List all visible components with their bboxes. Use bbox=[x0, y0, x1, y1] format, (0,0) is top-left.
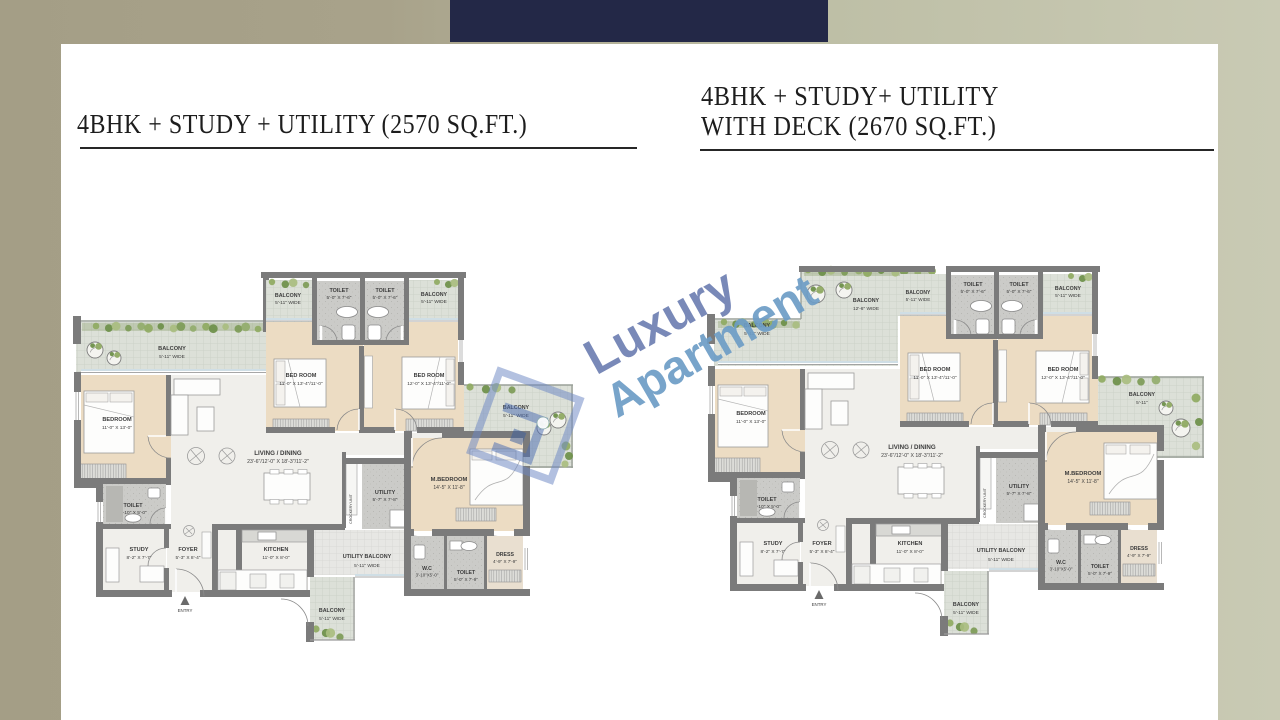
svg-text:11'-0" X 8'-0": 11'-0" X 8'-0" bbox=[262, 555, 290, 561]
svg-text:BALCONY: BALCONY bbox=[1129, 392, 1156, 398]
svg-text:W.C: W.C bbox=[1056, 560, 1066, 566]
svg-text:5'-11" WIDE: 5'-11" WIDE bbox=[1055, 293, 1081, 299]
svg-text:4'-9" X 7'-9": 4'-9" X 7'-9" bbox=[1127, 553, 1151, 558]
svg-text:ENTRY: ENTRY bbox=[812, 602, 827, 607]
svg-text:23'-6"/12'-0" X 18'-3"/11'-2": 23'-6"/12'-0" X 18'-3"/11'-2" bbox=[247, 459, 309, 465]
svg-text:DRESS: DRESS bbox=[496, 552, 514, 558]
svg-text:BED ROOM: BED ROOM bbox=[920, 367, 951, 373]
svg-text:5'-11" WIDE: 5'-11" WIDE bbox=[159, 354, 185, 360]
svg-text:3'-10"X5'-0": 3'-10"X5'-0" bbox=[416, 573, 439, 578]
svg-text:5'-3" X 8'-4": 5'-3" X 8'-4" bbox=[810, 549, 835, 555]
svg-text:BALCONY: BALCONY bbox=[953, 602, 980, 608]
svg-text:5'-0" X 7'-6": 5'-0" X 7'-6" bbox=[1007, 289, 1032, 295]
svg-text:BEDROOM: BEDROOM bbox=[736, 411, 766, 417]
svg-text:TOILET: TOILET bbox=[963, 282, 983, 288]
svg-text:UTILITY BALCONY: UTILITY BALCONY bbox=[977, 548, 1026, 554]
svg-text:12'-0" X 13'-4"/11'-0": 12'-0" X 13'-4"/11'-0" bbox=[407, 381, 451, 387]
svg-text:5'-0" X 7'-9": 5'-0" X 7'-9" bbox=[454, 577, 478, 582]
svg-text:LIVING / DINING: LIVING / DINING bbox=[254, 450, 302, 457]
svg-text:11'-0" X 13'-0": 11'-0" X 13'-0" bbox=[102, 425, 132, 431]
svg-text:5'-7" X 7'-8": 5'-7" X 7'-8" bbox=[1007, 491, 1032, 497]
svg-text:ENTRY: ENTRY bbox=[178, 608, 193, 613]
svg-text:11'-0" X 8'-0": 11'-0" X 8'-0" bbox=[896, 549, 924, 555]
svg-text:11'-0" X 13'-4"/11'-0": 11'-0" X 13'-4"/11'-0" bbox=[279, 381, 322, 387]
svg-text:5'-11" WIDE: 5'-11" WIDE bbox=[275, 300, 301, 306]
svg-text:5'-0" X 7'-6": 5'-0" X 7'-6" bbox=[373, 295, 398, 301]
svg-text:UTILITY: UTILITY bbox=[375, 490, 396, 496]
svg-text:BALCONY: BALCONY bbox=[319, 608, 346, 614]
svg-text:BALCONY: BALCONY bbox=[275, 293, 302, 299]
svg-text:BED ROOM: BED ROOM bbox=[1048, 367, 1079, 373]
svg-text:5'-0" X 7'-6": 5'-0" X 7'-6" bbox=[961, 289, 986, 295]
svg-text:TOILET: TOILET bbox=[123, 503, 143, 509]
svg-text:TOILET: TOILET bbox=[1091, 564, 1110, 570]
svg-text:KITCHEN: KITCHEN bbox=[898, 541, 923, 547]
svg-text:4'-9" X 7'-9": 4'-9" X 7'-9" bbox=[493, 559, 517, 564]
svg-text:5'-0" X 7'-6": 5'-0" X 7'-6" bbox=[327, 295, 352, 301]
svg-text:UTILITY BALCONY: UTILITY BALCONY bbox=[343, 554, 392, 560]
svg-text:TOILET: TOILET bbox=[375, 288, 395, 294]
svg-text:STUDY: STUDY bbox=[130, 547, 149, 553]
svg-text:BALCONY: BALCONY bbox=[853, 298, 880, 304]
svg-text:BALCONY: BALCONY bbox=[906, 290, 931, 296]
svg-text:CROCKERY UNIT: CROCKERY UNIT bbox=[983, 487, 987, 517]
svg-text:W.C: W.C bbox=[422, 566, 432, 572]
svg-text:M.BEDROOM: M.BEDROOM bbox=[1065, 471, 1102, 477]
svg-text:TOILET: TOILET bbox=[329, 288, 349, 294]
svg-text:UTILITY: UTILITY bbox=[1009, 484, 1030, 490]
svg-text:BEDROOM: BEDROOM bbox=[102, 417, 132, 423]
svg-text:3'-10"X5'-0": 3'-10"X5'-0" bbox=[1050, 567, 1073, 572]
svg-text:BED ROOM: BED ROOM bbox=[414, 373, 445, 379]
svg-text:LIVING / DINING: LIVING / DINING bbox=[888, 444, 936, 451]
svg-text:FOYER: FOYER bbox=[812, 541, 831, 547]
svg-text:DRESS: DRESS bbox=[1130, 546, 1148, 552]
svg-text:BALCONY: BALCONY bbox=[158, 346, 186, 352]
svg-text:11'-0" X 13'-4"/11'-0": 11'-0" X 13'-4"/11'-0" bbox=[913, 375, 956, 381]
svg-text:BALCONY: BALCONY bbox=[421, 292, 448, 298]
svg-text:5'-11" WIDE: 5'-11" WIDE bbox=[319, 616, 345, 622]
svg-text:12'-6" WIDE: 12'-6" WIDE bbox=[853, 306, 879, 312]
svg-text:23'-6"/12'-0" X 18'-3"/11'-2": 23'-6"/12'-0" X 18'-3"/11'-2" bbox=[881, 453, 943, 459]
svg-text:5'-11" WIDE: 5'-11" WIDE bbox=[953, 610, 979, 616]
svg-text:STUDY: STUDY bbox=[764, 541, 783, 547]
svg-text:5'-0" X 7'-9": 5'-0" X 7'-9" bbox=[1088, 571, 1112, 576]
svg-text:BALCONY: BALCONY bbox=[1055, 286, 1082, 292]
svg-text:BED ROOM: BED ROOM bbox=[286, 373, 317, 379]
svg-text:11'-0" X 13'-0": 11'-0" X 13'-0" bbox=[736, 419, 766, 425]
svg-text:KITCHEN: KITCHEN bbox=[264, 547, 289, 553]
svg-text:5'-11" WIDE: 5'-11" WIDE bbox=[421, 299, 447, 305]
svg-text:14'-5" X 11'-8": 14'-5" X 11'-8" bbox=[1067, 479, 1098, 485]
svg-text:12'-0" X 13'-4"/11'-0": 12'-0" X 13'-4"/11'-0" bbox=[1041, 375, 1085, 381]
svg-text:M.BEDROOM: M.BEDROOM bbox=[431, 477, 468, 483]
svg-text:5'-11" WIDE: 5'-11" WIDE bbox=[906, 297, 931, 302]
svg-text:5'-11" WIDE: 5'-11" WIDE bbox=[354, 563, 380, 569]
svg-text:8'-2" X 7'-7": 8'-2" X 7'-7" bbox=[127, 555, 152, 561]
svg-text:5'-11" WIDE: 5'-11" WIDE bbox=[988, 557, 1014, 563]
svg-text:CROCKERY UNIT: CROCKERY UNIT bbox=[349, 493, 353, 523]
svg-text:TOILET: TOILET bbox=[757, 497, 777, 503]
svg-text:5'-11": 5'-11" bbox=[1136, 400, 1148, 406]
svg-text:FOYER: FOYER bbox=[178, 547, 197, 553]
svg-text:8'-2" X 7'-7": 8'-2" X 7'-7" bbox=[761, 549, 786, 555]
svg-text:5'-3" X 8'-4": 5'-3" X 8'-4" bbox=[176, 555, 201, 561]
svg-text:5'-7" X 7'-8": 5'-7" X 7'-8" bbox=[373, 497, 398, 503]
svg-text:TOILET: TOILET bbox=[457, 570, 476, 576]
svg-text:TOILET: TOILET bbox=[1009, 282, 1029, 288]
svg-text:14'-5" X 11'-8": 14'-5" X 11'-8" bbox=[433, 485, 464, 491]
